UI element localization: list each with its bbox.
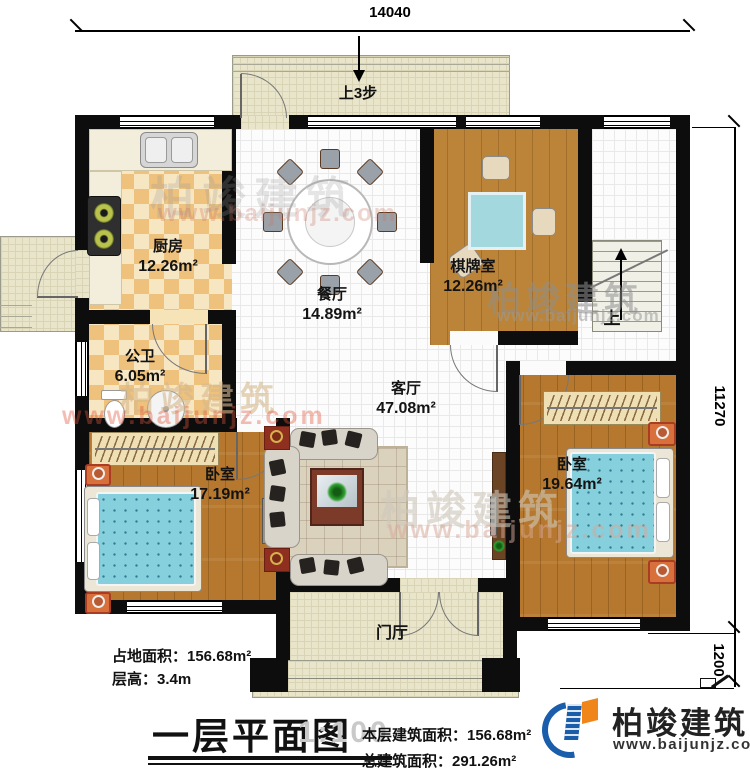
wall: [540, 115, 604, 129]
side-porch-steps: [0, 305, 32, 329]
porch-steps-label: 上3步: [322, 82, 394, 103]
wall: [478, 578, 517, 592]
nightstand-lamp: [656, 564, 669, 577]
porch-arrow-down-icon: [353, 70, 365, 82]
watermark-url: www.baijunjz.com: [497, 306, 660, 326]
pillow: [87, 542, 100, 580]
table-lamp: [270, 552, 283, 565]
room-label-living: 客厅 47.08m²: [358, 380, 454, 419]
floor-plan-sheet: 14040 11270 1200: [0, 0, 750, 775]
room-label-chess: 棋牌室 12.26m²: [428, 258, 518, 297]
room-name: 公卫: [102, 348, 178, 367]
room-area: 14.89m²: [296, 305, 368, 325]
logo-tower-accent: [582, 698, 598, 724]
sofa-cushion: [323, 559, 339, 575]
wall: [214, 115, 241, 129]
sink-basin: [171, 137, 193, 163]
nightstand-lamp: [92, 595, 105, 608]
window: [604, 115, 670, 129]
porch-pillar: [482, 658, 520, 692]
brand-logo-icon: [542, 696, 608, 762]
room-area: 6.05m²: [102, 367, 178, 387]
title-underline: [148, 756, 392, 760]
room-name: 门厅: [360, 624, 424, 644]
pillow: [87, 498, 100, 536]
entry-porch-step-line: [252, 678, 519, 679]
wall: [208, 310, 236, 324]
window: [120, 115, 214, 129]
room-label-foyer: 门厅: [360, 624, 424, 644]
table-lamp: [270, 430, 283, 443]
top-dimension-line: [75, 30, 690, 32]
sofa-cushion: [321, 429, 338, 446]
watermark-url: www.baijunjz.com: [388, 516, 652, 545]
window: [308, 115, 456, 129]
door-opening: [150, 310, 208, 324]
room-name: 卧室: [172, 466, 268, 485]
room-name: 厨房: [128, 238, 208, 257]
table-plant: [327, 482, 347, 502]
room-area: 12.26m²: [428, 277, 518, 297]
room-label-bathroom: 公卫 6.05m²: [102, 348, 178, 387]
window: [548, 617, 640, 631]
pillow: [656, 502, 670, 542]
pillow: [656, 458, 670, 498]
wardrobe-rail: [547, 407, 657, 409]
stove-burner: [94, 203, 114, 223]
wall: [75, 310, 150, 324]
wall: [498, 331, 578, 345]
wall: [503, 592, 517, 660]
sink-basin: [145, 137, 167, 163]
porch-leader-line: [358, 36, 360, 70]
room-name: 棋牌室: [428, 258, 518, 277]
room-label-dining: 餐厅 14.89m²: [296, 286, 368, 325]
chess-chair: [482, 156, 510, 180]
title-underline: [148, 763, 392, 765]
chess-chair: [532, 208, 556, 236]
wall: [566, 361, 690, 375]
nightstand-lamp: [92, 467, 105, 480]
door-opening: [400, 578, 478, 592]
witness-line: [692, 127, 734, 128]
wall: [420, 129, 434, 263]
room-area: 19.64m²: [524, 475, 620, 495]
room-name: 客厅: [358, 380, 454, 399]
window: [466, 115, 540, 129]
bed-mattress: [96, 492, 196, 586]
watermark-url: www.baijunjz.com: [62, 402, 326, 431]
room-area: 17.19m²: [172, 485, 268, 505]
wardrobe-rail: [95, 448, 215, 450]
wall: [289, 115, 308, 129]
room-name: 餐厅: [296, 286, 368, 305]
window: [127, 600, 222, 614]
room-area: 12.26m²: [128, 257, 208, 277]
entry-porch-floor: [252, 660, 519, 698]
porch-pillar: [250, 658, 288, 692]
top-dimension-label: 14040: [320, 4, 460, 24]
watermark-url: www.baijunjz.com: [158, 200, 397, 228]
floor-height-note: 层高：3.4m: [112, 668, 191, 689]
sofa-cushion: [299, 557, 316, 574]
brand-website: www.baijunjz.com: [613, 736, 750, 753]
stair-arrow-up-icon: [615, 248, 627, 260]
sofa-cushion: [269, 459, 287, 477]
room-area: 47.08m²: [358, 399, 454, 419]
sofa-cushion: [299, 431, 316, 448]
right-dimension-label: 11270: [710, 376, 728, 436]
door-opening: [450, 331, 498, 345]
room-name: 卧室: [524, 456, 620, 475]
site-area-note: 占地面积：156.68m²: [112, 645, 251, 666]
window: [75, 342, 89, 396]
sofa-cushion: [269, 485, 286, 502]
witness-line: [560, 688, 734, 689]
door-opening: [516, 361, 566, 375]
room-label-bedroom-right: 卧室 19.64m²: [524, 456, 620, 495]
wall: [676, 115, 690, 631]
sofa-cushion: [269, 511, 285, 527]
chess-table: [468, 192, 526, 250]
witness-line: [648, 633, 734, 634]
dimension-tick: [728, 115, 741, 128]
wall: [456, 115, 466, 129]
room-label-kitchen: 厨房 12.26m²: [128, 238, 208, 277]
right-dimension-line: [734, 127, 736, 687]
room-label-bedroom-left: 卧室 17.19m²: [172, 466, 268, 505]
total-area-note: 总建筑面积：291.26m²: [362, 750, 516, 771]
nightstand-lamp: [656, 426, 669, 439]
top-porch-steps: [232, 57, 510, 75]
floor-area-note: 本层建筑面积：156.68m²: [362, 724, 531, 745]
entry-porch-step-line: [252, 691, 519, 692]
stove-burner: [94, 229, 114, 249]
